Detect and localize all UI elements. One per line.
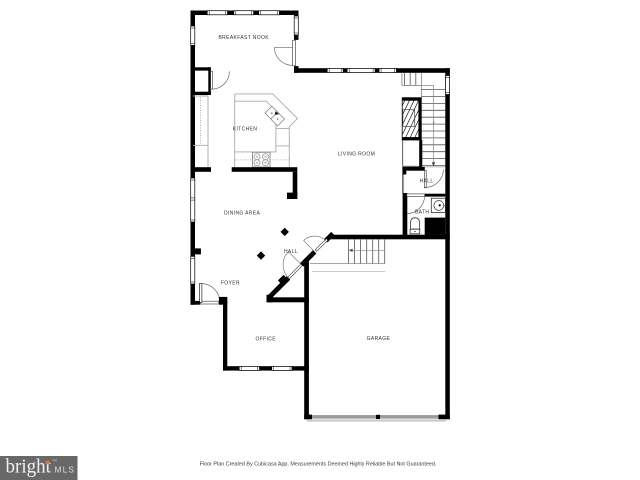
- svg-text:DINING AREA: DINING AREA: [224, 210, 260, 216]
- svg-text:KITCHEN: KITCHEN: [233, 127, 257, 133]
- svg-text:BATH: BATH: [415, 210, 429, 216]
- svg-text:BREAKFAST NOOK: BREAKFAST NOOK: [219, 35, 270, 41]
- svg-text:FOYER: FOYER: [221, 281, 240, 287]
- svg-text:Floor Plan Created By Cubicasa: Floor Plan Created By Cubicasa App. Meas…: [200, 462, 437, 468]
- svg-text:TM: TM: [52, 459, 57, 463]
- svg-text:MLS: MLS: [55, 464, 75, 474]
- svg-text:HALL: HALL: [420, 179, 434, 185]
- svg-text:LIVING ROOM: LIVING ROOM: [338, 151, 375, 157]
- svg-text:OFFICE: OFFICE: [255, 336, 276, 342]
- svg-text:2: 2: [433, 121, 435, 125]
- svg-text:bright: bright: [6, 456, 52, 478]
- svg-text:HALL: HALL: [284, 249, 298, 255]
- svg-text:GARAGE: GARAGE: [367, 336, 391, 342]
